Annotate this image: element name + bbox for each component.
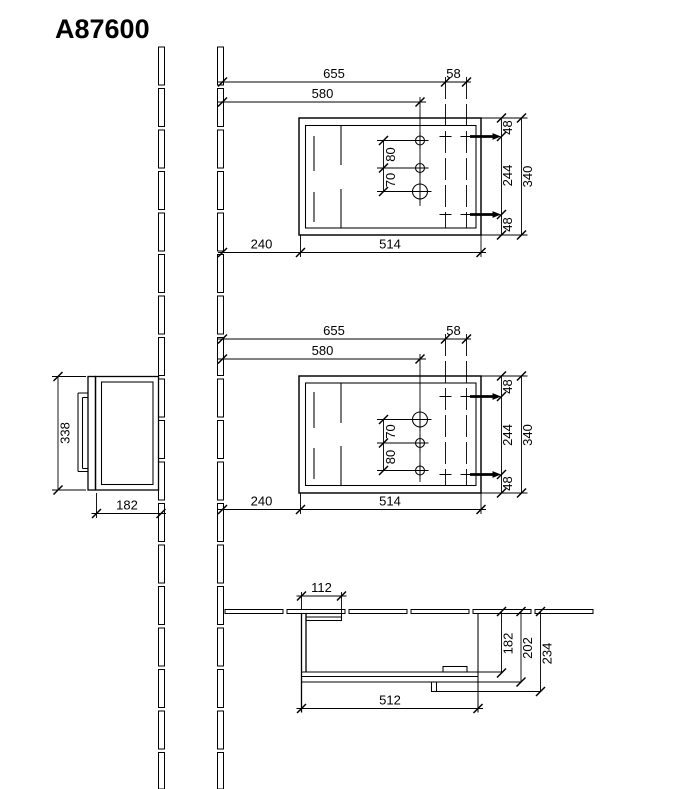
dim-holes-group: 70 80 bbox=[377, 415, 413, 475]
wall-dash-segment bbox=[535, 610, 593, 614]
wall-dash-segment bbox=[218, 545, 224, 583]
wall-line-right bbox=[218, 47, 224, 789]
dim-label-244: 244 bbox=[500, 165, 515, 187]
technical-drawing-canvas: A87600 655 58 580 240 514 bbox=[0, 0, 679, 789]
front-view-top: 655 58 580 240 514 48 244 48 340 80 70 bbox=[218, 66, 535, 257]
handle-section bbox=[432, 682, 437, 692]
hidden-edges bbox=[314, 126, 341, 229]
wall-dash-segment bbox=[159, 753, 165, 789]
drawing-title: A87600 bbox=[55, 14, 150, 44]
hinge-leader-arrow bbox=[470, 471, 501, 478]
wall-line-back bbox=[225, 610, 593, 614]
wall-dash-segment bbox=[218, 130, 224, 168]
wall-dash-segment bbox=[218, 379, 224, 417]
wall-dash-segment bbox=[218, 462, 224, 500]
wall-dash-segment bbox=[218, 421, 224, 459]
dim-label-112: 112 bbox=[311, 580, 332, 595]
wall-dash-segment bbox=[287, 610, 345, 614]
plan-view: 112 512 182 202 234 bbox=[297, 580, 555, 713]
dim-depth-group: 182 bbox=[92, 493, 167, 518]
dim-label-514: 514 bbox=[379, 237, 401, 252]
hidden-edges bbox=[314, 383, 341, 486]
dim-height-group: 338 bbox=[52, 372, 86, 495]
hinge-leader-arrow bbox=[470, 133, 501, 140]
dim-bracket-group: 112 bbox=[297, 580, 347, 614]
drill-hole-small bbox=[412, 435, 429, 452]
wall-dash-segment bbox=[159, 47, 165, 85]
wall-dash-segment bbox=[159, 255, 165, 293]
dim-label-240: 240 bbox=[251, 494, 273, 509]
front-edges bbox=[302, 672, 522, 682]
dim-depth-group: 182 202 234 bbox=[497, 607, 555, 696]
wall-dash-segment bbox=[159, 89, 165, 127]
wall-dash-segment bbox=[218, 213, 224, 251]
wall-dash-segment bbox=[159, 130, 165, 168]
dim-label-338: 338 bbox=[58, 422, 73, 444]
wall-line-left bbox=[159, 47, 165, 789]
wall-dash-segment bbox=[218, 89, 224, 127]
dim-label-58: 58 bbox=[446, 323, 460, 338]
drill-hole-small bbox=[412, 132, 429, 149]
dim-label-340: 340 bbox=[520, 166, 535, 188]
dim-label-655: 655 bbox=[323, 66, 345, 81]
dim-label-240: 240 bbox=[251, 237, 273, 252]
dim-label-48-top: 48 bbox=[500, 379, 515, 393]
drill-hole-small bbox=[412, 160, 429, 177]
dim-holes-group: 80 70 bbox=[377, 136, 413, 196]
wall-dash-segment bbox=[349, 610, 407, 614]
hinge-plate bbox=[443, 667, 467, 673]
wall-dash-segment bbox=[218, 628, 224, 666]
carcass-inner bbox=[102, 382, 154, 485]
carcass-outline bbox=[96, 377, 159, 491]
dim-label-182: 182 bbox=[116, 498, 138, 513]
dim-label-244: 244 bbox=[500, 424, 515, 446]
drill-hole-large bbox=[409, 408, 432, 431]
dim-lines bbox=[218, 82, 471, 102]
hinge-leader-arrow bbox=[470, 393, 501, 400]
dim-label-70: 70 bbox=[383, 424, 398, 438]
dim-label-514: 514 bbox=[379, 494, 401, 509]
wall-dash-segment bbox=[159, 504, 165, 542]
wall-dash-segment bbox=[159, 670, 165, 708]
wall-dash-segment bbox=[159, 628, 165, 666]
dim-label-80: 80 bbox=[383, 147, 398, 161]
handle-profile bbox=[78, 393, 88, 472]
wall-dash-segment bbox=[159, 172, 165, 210]
dim-label-512: 512 bbox=[379, 693, 401, 708]
side-panel-edge bbox=[302, 614, 307, 713]
drawing-page: A87600 655 58 580 240 514 bbox=[0, 0, 679, 789]
dim-width-group: 655 58 580 bbox=[218, 66, 471, 107]
dim-label-48-bottom: 48 bbox=[500, 476, 515, 490]
wall-dash-segment bbox=[218, 296, 224, 334]
hinge-cross-marks bbox=[440, 397, 473, 475]
wall-dash-segment bbox=[218, 255, 224, 293]
wall-dash-segment bbox=[159, 462, 165, 500]
wall-dash-segment bbox=[159, 587, 165, 625]
dim-label-48-top: 48 bbox=[500, 120, 515, 134]
dim-label-655: 655 bbox=[323, 323, 345, 338]
hinge-center-lines bbox=[446, 77, 467, 228]
wall-dash-segment bbox=[159, 338, 165, 376]
dim-width-group: 512 bbox=[297, 693, 484, 714]
dim-label-182: 182 bbox=[501, 633, 516, 655]
hinge-cross-marks bbox=[440, 137, 473, 215]
dim-label-70: 70 bbox=[383, 173, 398, 187]
wall-dash-segment bbox=[218, 587, 224, 625]
wall-dash-segment bbox=[218, 670, 224, 708]
wall-dash-segment bbox=[411, 610, 469, 614]
dim-right-group: 48 244 48 340 bbox=[481, 372, 535, 498]
dim-label-48-bottom: 48 bbox=[500, 217, 515, 231]
wall-dash-segment bbox=[159, 213, 165, 251]
hinge-leader-arrow bbox=[470, 211, 501, 218]
door-panel bbox=[88, 377, 96, 491]
front-view-middle: 655 58 580 240 514 48 244 48 340 70 80 bbox=[218, 323, 535, 514]
wall-dash-segment bbox=[218, 711, 224, 749]
dim-label-202: 202 bbox=[520, 637, 535, 659]
dim-label-580: 580 bbox=[312, 343, 334, 358]
dim-label-340: 340 bbox=[520, 424, 535, 446]
dim-right-group: 48 244 48 340 bbox=[481, 114, 535, 240]
hinge-center-lines bbox=[446, 334, 467, 485]
dim-label-58: 58 bbox=[446, 66, 460, 81]
dim-lines bbox=[218, 339, 471, 359]
dim-label-234: 234 bbox=[540, 643, 555, 665]
wall-dash-segment bbox=[225, 610, 283, 614]
wall-dash-segment bbox=[159, 545, 165, 583]
wall-dash-segment bbox=[159, 421, 165, 459]
drill-hole-large bbox=[409, 180, 432, 203]
wall-dash-segment bbox=[218, 47, 224, 85]
dim-label-80: 80 bbox=[383, 450, 398, 464]
dim-bottom-group: 240 514 bbox=[218, 493, 486, 514]
wall-dash-segment bbox=[159, 711, 165, 749]
dim-bottom-group: 240 514 bbox=[218, 235, 486, 257]
wall-dash-segment bbox=[159, 296, 165, 334]
wall-dash-segment bbox=[218, 753, 224, 789]
wall-dash-segment bbox=[218, 172, 224, 210]
wall-dash-segment bbox=[159, 379, 165, 417]
drill-hole-small bbox=[412, 462, 429, 479]
side-view: 338 182 bbox=[52, 372, 166, 518]
dim-width-group: 655 58 580 bbox=[218, 323, 471, 364]
dim-label-580: 580 bbox=[312, 86, 334, 101]
